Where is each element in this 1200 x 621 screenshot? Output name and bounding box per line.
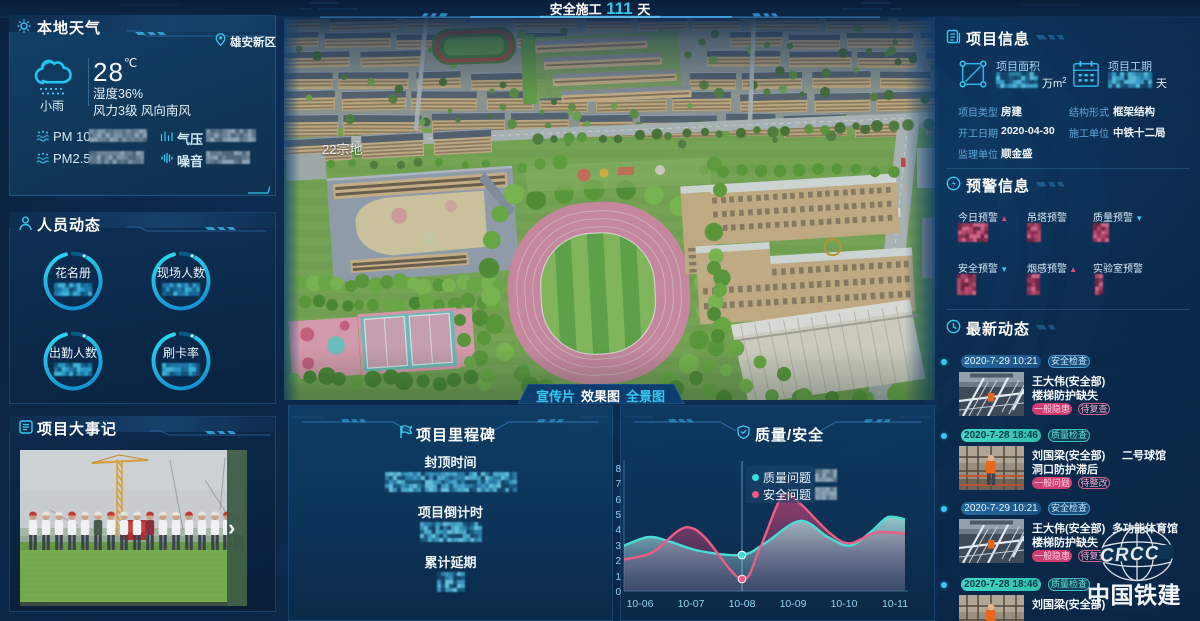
svg-text:10-06: 10-06 [627, 598, 654, 610]
svg-text:10-08: 10-08 [729, 598, 756, 610]
svg-text:1: 1 [615, 572, 621, 583]
svg-text:5: 5 [615, 510, 621, 521]
svg-text:8: 8 [615, 464, 621, 475]
svg-text:4: 4 [615, 525, 621, 536]
svg-text:2: 2 [615, 556, 621, 567]
svg-text:0: 0 [615, 587, 621, 598]
svg-text:10-07: 10-07 [678, 598, 705, 610]
svg-text:3: 3 [615, 541, 621, 552]
svg-text:7: 7 [615, 479, 621, 490]
svg-text:10-11: 10-11 [882, 598, 908, 610]
svg-text:6: 6 [615, 495, 621, 506]
svg-text:10-10: 10-10 [831, 598, 858, 610]
svg-text:10-09: 10-09 [780, 598, 807, 610]
svg-text:CRCC: CRCC [1100, 543, 1161, 567]
